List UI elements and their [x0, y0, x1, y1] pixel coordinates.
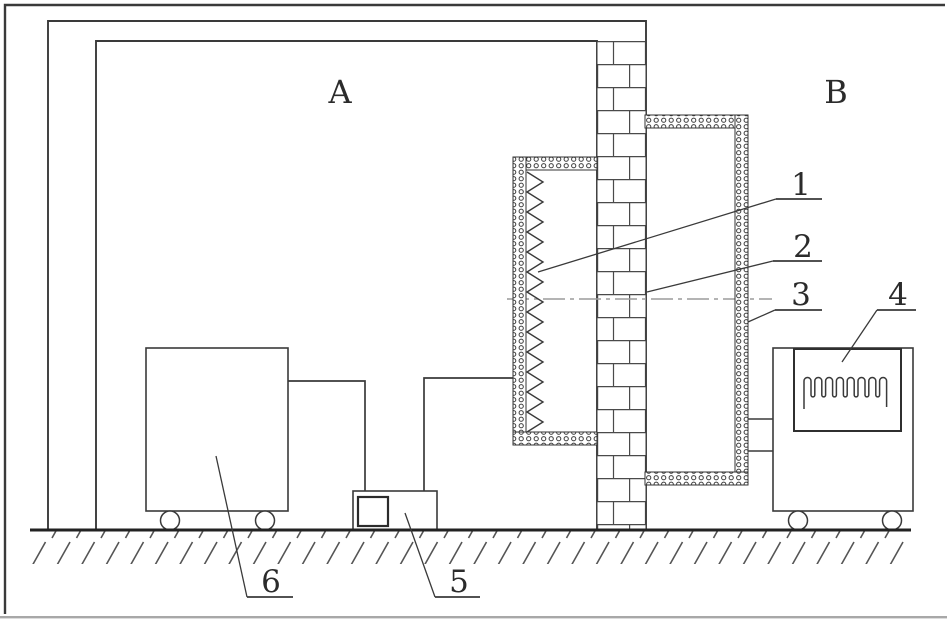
- callout-6-label: 6: [261, 564, 281, 600]
- callout-1-label: 1: [791, 167, 811, 203]
- figure-bottom-edge: [0, 616, 947, 618]
- diagram-canvas: A B 1 2 3 4 5 6: [0, 0, 947, 619]
- room-a-label: A: [327, 73, 352, 111]
- callout-2-label: 2: [793, 229, 813, 265]
- hot-box-bottom-insulation: [645, 472, 748, 485]
- callout-3-label: 3: [791, 277, 811, 313]
- heater-wheel-left-icon: [789, 511, 808, 530]
- cold-box-bottom-insulation: [513, 432, 597, 445]
- room-b-label: B: [824, 73, 848, 111]
- hot-box-right-insulation: [735, 115, 748, 485]
- callout-4-label: 4: [888, 277, 908, 313]
- callout-5-label: 5: [449, 564, 469, 600]
- control-unit: [353, 491, 437, 530]
- cart-body: [146, 348, 288, 511]
- brick-test-wall: [598, 41, 646, 530]
- equipment-cart: [146, 348, 288, 530]
- cart-wheel-right-icon: [256, 511, 275, 530]
- hot-box-top-insulation: [645, 115, 748, 128]
- brick-wall-fill: [598, 41, 646, 530]
- ground-hatching: [32, 531, 905, 564]
- diagram-page: A B 1 2 3 4 5 6: [0, 0, 947, 619]
- cold-box-left-insulation: [513, 157, 526, 445]
- ground: [30, 530, 911, 564]
- heater-unit: [773, 348, 913, 530]
- heater-wheel-right-icon: [883, 511, 902, 530]
- control-unit-display: [358, 497, 388, 526]
- cart-wheel-left-icon: [161, 511, 180, 530]
